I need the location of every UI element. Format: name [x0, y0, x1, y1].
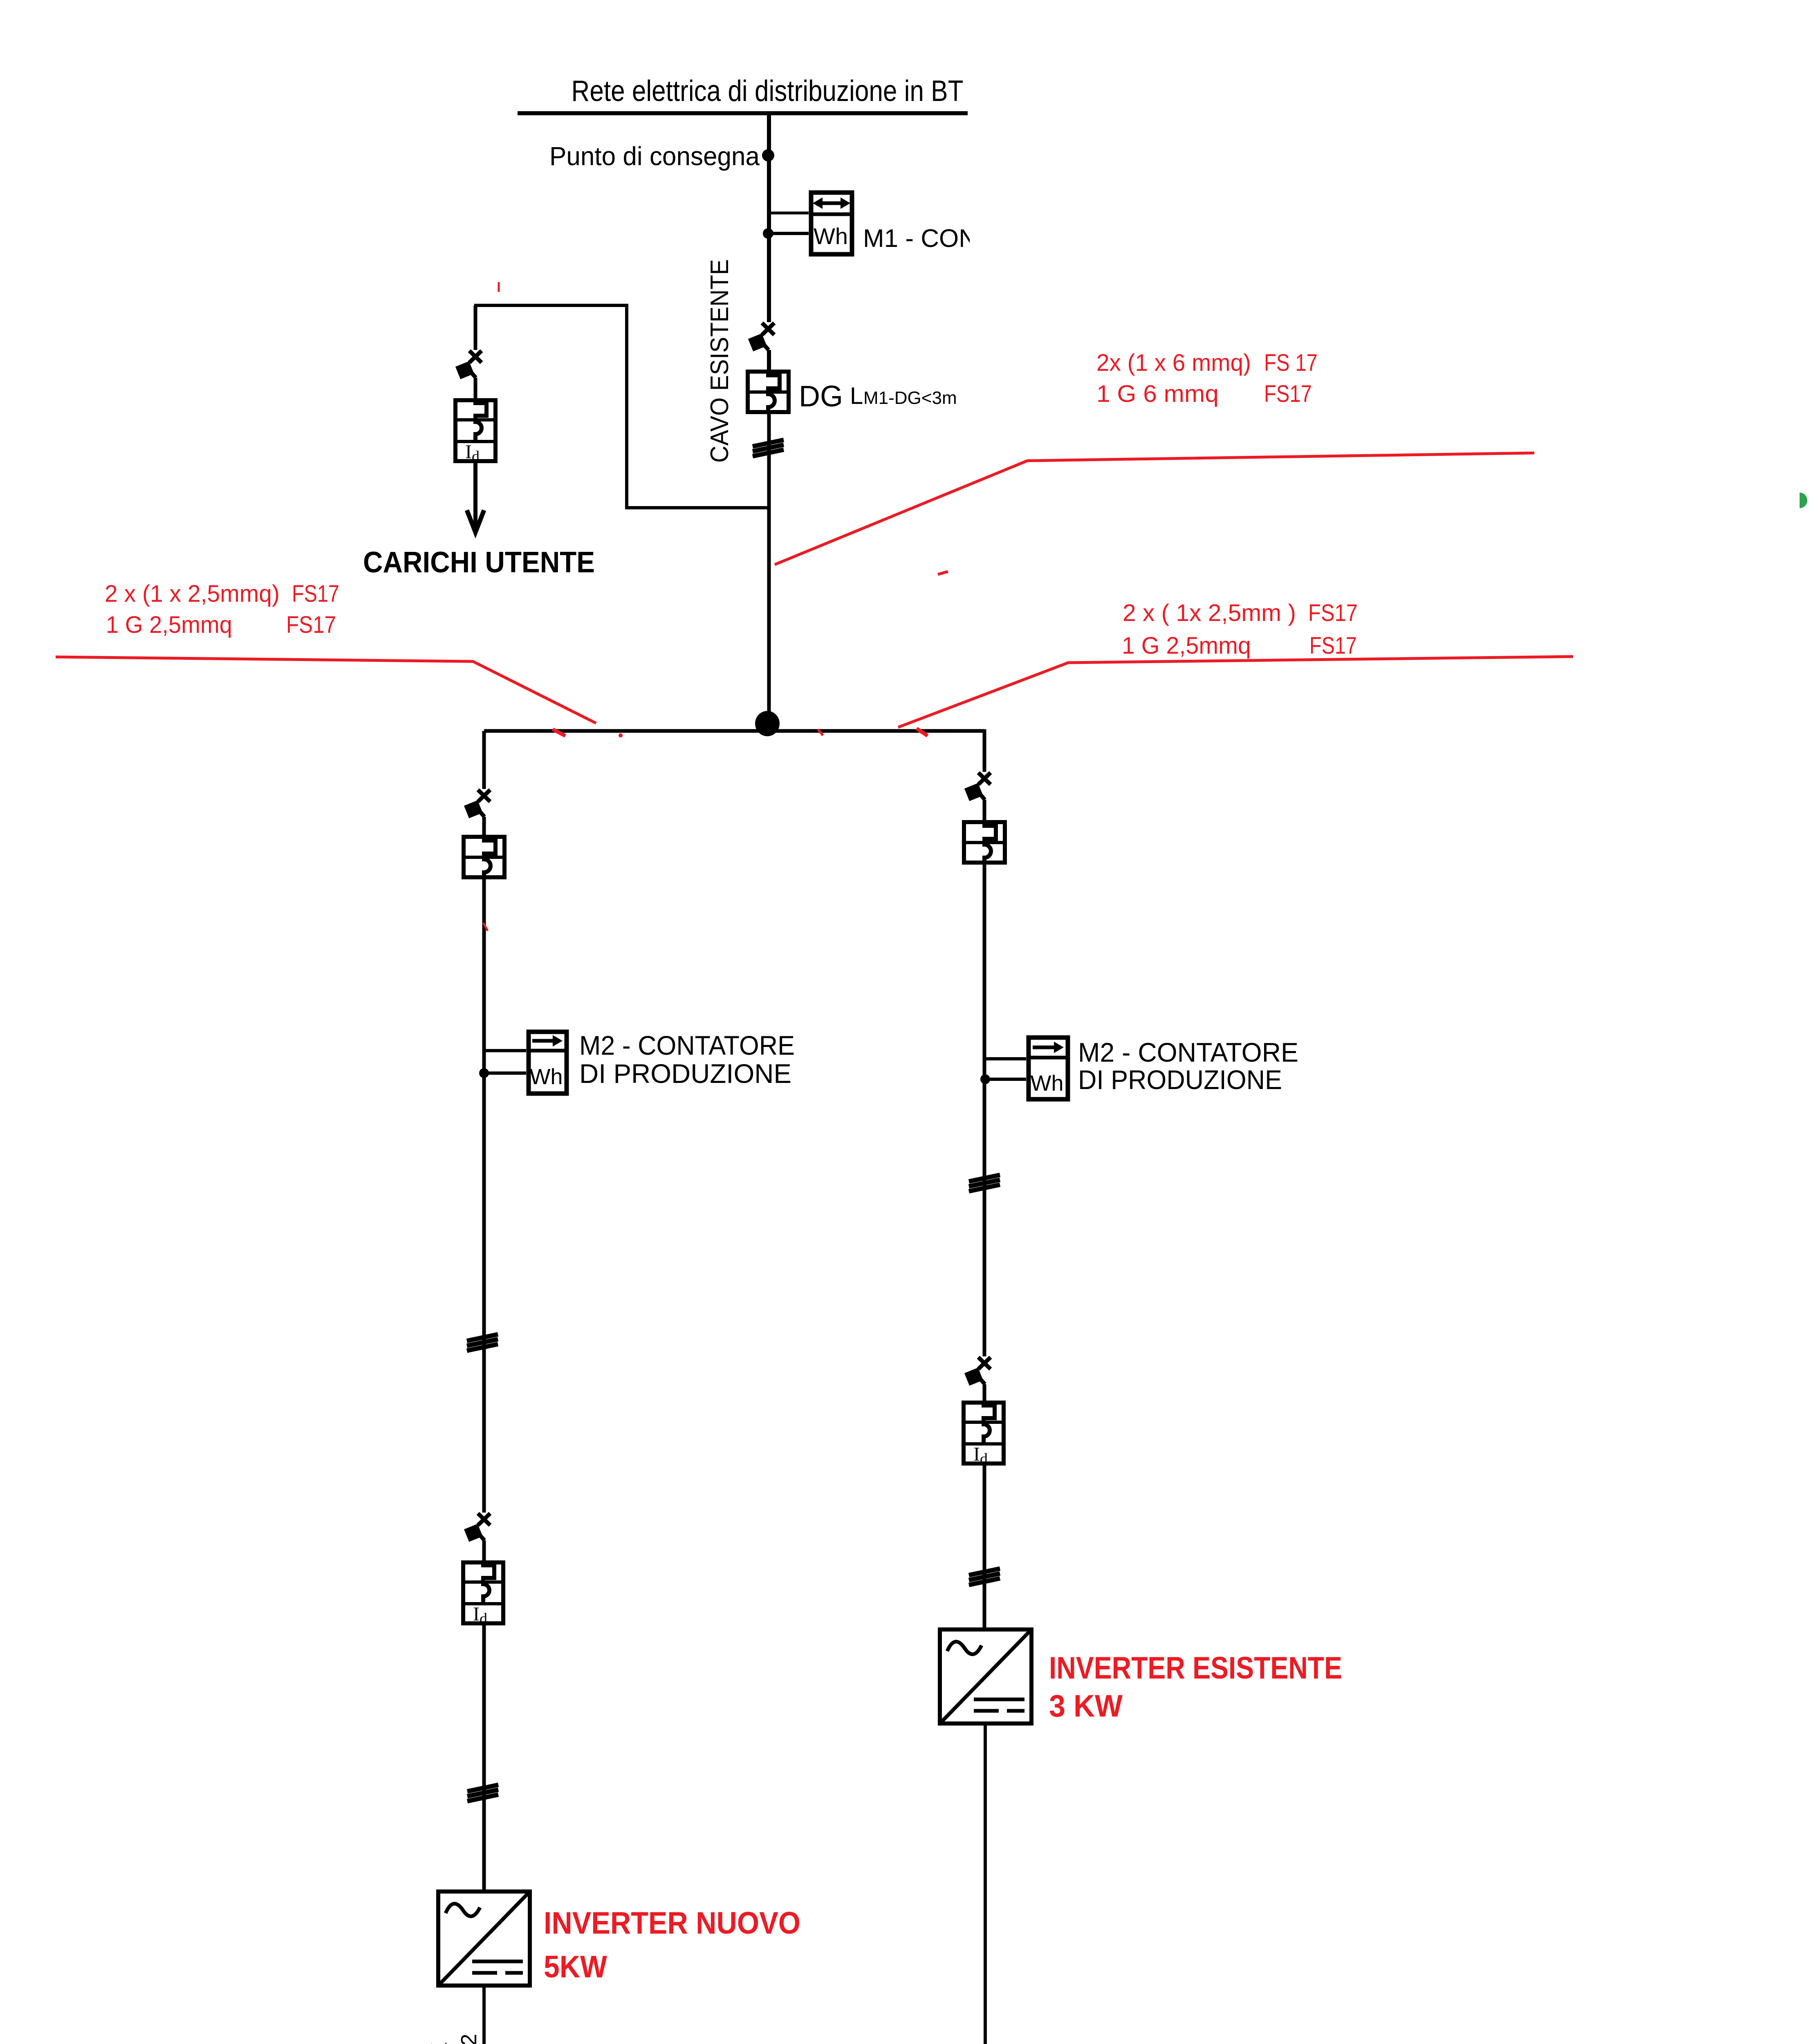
svg-text:INVERTER NUOVO: INVERTER NUOVO	[544, 1906, 800, 1941]
svg-text:Wh: Wh	[814, 223, 848, 249]
svg-text:FS17: FS17	[292, 580, 339, 607]
svg-text:2 x ( 1x 2,5mm ): 2 x ( 1x 2,5mm )	[1123, 600, 1296, 626]
svg-text:3 KW: 3 KW	[1049, 1689, 1123, 1724]
svg-text:DI PRODUZIONE: DI PRODUZIONE	[1078, 1065, 1282, 1095]
svg-text:1 G 6 mmq: 1 G 6 mmq	[1096, 381, 1219, 407]
svg-text:Rete elettrica di distribuzion: Rete elettrica di distribuzione in BT	[572, 75, 964, 108]
svg-text:INVERTER ESISTENTE: INVERTER ESISTENTE	[1049, 1651, 1342, 1685]
svg-text:Wh: Wh	[530, 1065, 563, 1089]
svg-text:M1-DG<3m: M1-DG<3m	[863, 388, 957, 408]
svg-text:M2 - CONTATORE: M2 - CONTATORE	[1078, 1037, 1298, 1067]
svg-text:DG: DG	[799, 380, 843, 413]
svg-text:DI PRODUZIONE: DI PRODUZIONE	[579, 1058, 791, 1089]
svg-text:5KW: 5KW	[544, 1950, 607, 1984]
svg-text:FS17: FS17	[286, 612, 336, 638]
svg-text:1 G 2,5mmq: 1 G 2,5mmq	[106, 612, 232, 638]
svg-text:1 G 2,5mmq: 1 G 2,5mmq	[1122, 632, 1251, 659]
svg-text:H1Z2Z2-K: H1Z2Z2-K	[427, 2042, 451, 2044]
svg-text:2x (1 x 6 mmq): 2x (1 x 6 mmq)	[1096, 350, 1251, 376]
svg-text:M2 - CONTATORE: M2 - CONTATORE	[579, 1030, 795, 1060]
svg-text:2 x (1 x 2,5mmq): 2 x (1 x 2,5mmq)	[105, 580, 280, 607]
svg-text:L: L	[850, 383, 863, 409]
svg-text:FS17: FS17	[1309, 632, 1357, 659]
svg-text:Wh: Wh	[1031, 1071, 1064, 1096]
svg-text:FS 17: FS 17	[1264, 350, 1318, 376]
svg-text:2X(1x6) mm2: 2X(1x6) mm2	[457, 2034, 481, 2044]
svg-text:FS17: FS17	[1308, 600, 1358, 626]
svg-text:Punto di consegna: Punto di consegna	[549, 141, 760, 171]
svg-text:M1 - CONTATORE: M1 - CONTATORE	[863, 224, 1076, 253]
svg-text:FS17: FS17	[1264, 381, 1312, 407]
svg-text:CAVO ESISTENTE: CAVO ESISTENTE	[706, 259, 734, 463]
svg-text:CARICHI UTENTE: CARICHI UTENTE	[363, 546, 595, 579]
